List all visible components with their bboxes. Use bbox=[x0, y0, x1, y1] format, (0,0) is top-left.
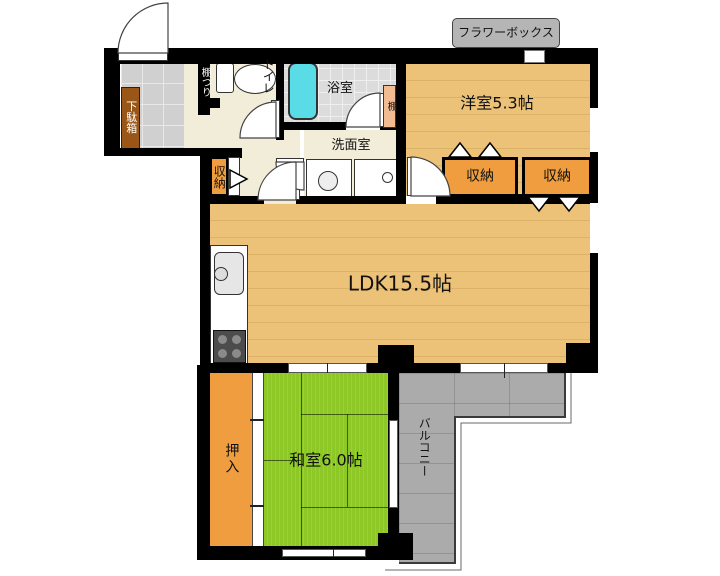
toilet-shelf-label: 棚つり bbox=[199, 67, 210, 97]
bath-shelf-label: 棚 bbox=[385, 101, 396, 111]
balcony-outline bbox=[385, 373, 571, 570]
washroom-label: 洗面室 bbox=[331, 139, 370, 153]
toilet-label: トイレ bbox=[262, 58, 275, 94]
western-room-label: 洋室5.3帖 bbox=[460, 96, 533, 113]
door-swing-arcs bbox=[118, 3, 450, 200]
hall-closet-chevron bbox=[230, 170, 247, 188]
flower-box-label: フラワーボックス bbox=[458, 27, 554, 40]
ldk-label: LDK15.5帖 bbox=[348, 274, 452, 295]
bifold-triangle-down bbox=[528, 197, 550, 211]
floorplan-canvas: フラワーボックス 洋室5.3帖 収納 収納 棚 浴室 トイレ 棚つり 洗面室 収… bbox=[0, 0, 720, 576]
western-door-arc bbox=[411, 157, 450, 196]
bifold-triangle-down bbox=[558, 197, 580, 211]
bifold-triangle-up bbox=[449, 143, 471, 157]
oshiire-label: 押入 bbox=[224, 443, 239, 475]
entry-door-arc bbox=[118, 3, 168, 53]
shoe-cabinet-label: 下駄箱 bbox=[125, 101, 137, 134]
balcony-label: バルコニー bbox=[418, 417, 431, 477]
bathroom-door-arc bbox=[346, 93, 380, 127]
closet-west-left-label: 収納 bbox=[466, 170, 494, 185]
bathroom-label: 浴室 bbox=[327, 82, 353, 96]
bifold-triangle-up bbox=[479, 143, 501, 157]
hall-closet-label: 収納 bbox=[213, 165, 226, 189]
toilet-door-arc bbox=[240, 102, 276, 138]
japanese-room-label: 和室6.0帖 bbox=[289, 453, 362, 470]
closet-west-right-label: 収納 bbox=[543, 170, 571, 185]
ldk-door-arc bbox=[258, 162, 296, 200]
